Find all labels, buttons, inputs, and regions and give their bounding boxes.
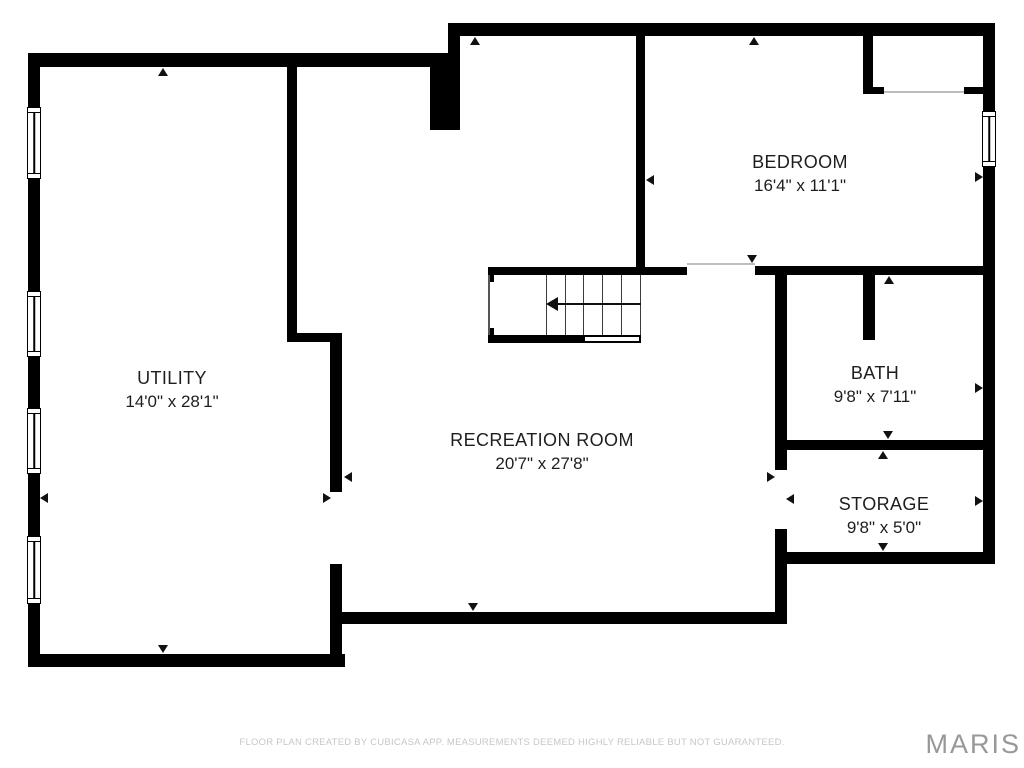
arrow-marker-icon: [646, 175, 654, 185]
wall: [863, 36, 873, 94]
window: [982, 111, 996, 167]
arrow-marker-icon: [747, 255, 757, 263]
stair-tread: [621, 275, 622, 335]
wall: [330, 564, 342, 667]
arrow-marker-icon: [468, 603, 478, 611]
stair-direction-line: [554, 303, 641, 305]
stair-open-edge: [583, 335, 641, 343]
arrow-marker-icon: [786, 494, 794, 504]
wall: [28, 654, 345, 667]
stair-direction-arrow-icon: [546, 297, 558, 311]
arrow-marker-icon: [158, 645, 168, 653]
room-label-bedroom: BEDROOM 16'4" x 11'1": [752, 150, 848, 198]
arrow-marker-icon: [878, 451, 888, 459]
arrow-marker-icon: [767, 472, 775, 482]
arrow-marker-icon: [975, 172, 983, 182]
door-opening: [687, 263, 755, 265]
arrow-marker-icon: [470, 37, 480, 45]
room-label-recreation-room: RECREATION ROOM 20'7" x 27'8": [450, 428, 634, 476]
wall: [488, 267, 687, 275]
wall: [983, 166, 995, 564]
stair-tread: [565, 275, 566, 335]
wall: [964, 87, 983, 94]
window: [27, 536, 41, 604]
room-name: BATH: [834, 361, 917, 385]
wall: [330, 612, 787, 624]
stair-tread: [602, 275, 603, 335]
arrow-marker-icon: [975, 383, 983, 393]
arrow-marker-icon: [749, 37, 759, 45]
room-name: STORAGE: [839, 492, 930, 516]
wall: [636, 36, 645, 275]
wall: [775, 529, 787, 624]
wall: [448, 36, 460, 53]
room-label-storage: STORAGE 9'8" x 5'0": [839, 492, 930, 540]
room-dimensions: 20'7" x 27'8": [450, 452, 634, 476]
wall: [775, 552, 995, 564]
wall: [983, 23, 995, 112]
stair-edge: [488, 275, 490, 335]
wall: [755, 266, 983, 275]
arrow-marker-icon: [884, 276, 894, 284]
stair-tread: [640, 275, 641, 335]
door-opening: [884, 91, 964, 93]
wall: [430, 67, 460, 130]
floor-plan: UTILITY 14'0" x 28'1" RECREATION ROOM 20…: [0, 0, 1024, 768]
room-dimensions: 16'4" x 11'1": [752, 174, 848, 198]
wall: [488, 335, 583, 343]
wall: [863, 275, 875, 340]
room-dimensions: 9'8" x 5'0": [839, 516, 930, 540]
room-dimensions: 9'8" x 7'11": [834, 385, 917, 409]
arrow-marker-icon: [323, 493, 331, 503]
window: [27, 408, 41, 474]
wall: [863, 87, 884, 94]
room-name: RECREATION ROOM: [450, 428, 634, 452]
room-name: BEDROOM: [752, 150, 848, 174]
stair-tread: [583, 275, 584, 335]
wall: [448, 23, 995, 36]
arrow-marker-icon: [344, 472, 352, 482]
room-label-utility: UTILITY 14'0" x 28'1": [125, 366, 218, 414]
window: [27, 107, 41, 179]
wall: [330, 342, 342, 492]
arrow-marker-icon: [158, 68, 168, 76]
room-name: UTILITY: [125, 366, 218, 390]
arrow-marker-icon: [40, 493, 48, 503]
wall: [775, 440, 983, 450]
disclaimer-text: FLOOR PLAN CREATED BY CUBICASA APP. MEAS…: [239, 737, 784, 748]
wall: [28, 53, 460, 67]
arrow-marker-icon: [878, 543, 888, 551]
wall: [287, 333, 342, 342]
window: [27, 291, 41, 357]
room-label-bath: BATH 9'8" x 7'11": [834, 361, 917, 409]
maris-watermark: MARIS: [925, 729, 1021, 760]
arrow-marker-icon: [975, 496, 983, 506]
room-dimensions: 14'0" x 28'1": [125, 390, 218, 414]
arrow-marker-icon: [883, 431, 893, 439]
wall: [287, 67, 297, 342]
